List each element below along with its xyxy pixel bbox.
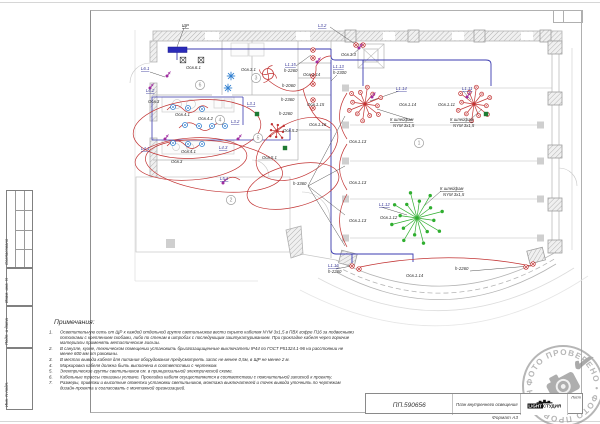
title-block: ПП.590656 План внутреннего освещения ▂▅▃… <box>365 393 583 414</box>
plan-label: L3.2 <box>318 23 327 28</box>
plan-label: ЩР <box>182 23 189 28</box>
room-number: 3 <box>255 76 258 82</box>
plan-label: L1.11 <box>462 86 473 91</box>
sheet-cell: Лист <box>568 394 584 415</box>
plan-label: L3.2 <box>231 119 240 124</box>
note-item: 1.Осветительную сеть от ЩР к каждой отде… <box>48 330 354 346</box>
plan-label: L4.1 <box>141 146 150 151</box>
room-number: 4 <box>219 118 222 124</box>
room-number: 1 <box>418 141 421 147</box>
doc-number-cell: ПП.590656 <box>366 394 453 415</box>
side-stamp-cell: Взам. инв. N <box>6 268 33 306</box>
side-stamp-cell: Согласовано <box>6 190 33 268</box>
plan-label: h-2260 <box>284 68 298 73</box>
plan-label: Осв.1.14 <box>303 72 321 77</box>
plan-label: Осв.3.1 <box>241 67 257 72</box>
note-item: 4.Маркировка кабеля должна быть выполнен… <box>48 363 354 368</box>
plan-label: Осв.1.16 <box>309 122 327 127</box>
plan-label: К шлейфам <box>440 186 463 191</box>
side-stamp-cell: Инв. N подл. <box>6 348 33 410</box>
plan-label: Осв.3 <box>148 99 160 104</box>
plan-label: h-2060 <box>282 83 296 88</box>
drawing-title-cell: План внутреннего освещения <box>453 394 521 415</box>
plan-label: L3.1 <box>247 101 256 106</box>
notes-heading: Примечания: <box>54 318 354 326</box>
plan-label: h-2260 <box>328 269 342 274</box>
plan-label: h-2300 <box>333 70 347 75</box>
distribution-board <box>168 47 187 53</box>
format-label: Формат А3 <box>400 415 600 421</box>
side-stamp-label: Подп. и дата <box>4 318 9 345</box>
logo-word2: СТУДИЯ <box>543 404 561 409</box>
plan-label: NYM 3х1,5 <box>393 123 415 128</box>
plan-label: Осв.1.13 <box>349 139 367 144</box>
plan-label: Осв.1.13 <box>349 218 367 223</box>
plan-label: Осв.3 <box>171 159 183 164</box>
note-item: 5.Электрические группы светильников см. … <box>48 369 354 374</box>
plan-label: Осв.4.2 <box>198 116 214 121</box>
note-item: 6.Кабельные трассы показаны условно. Про… <box>48 374 354 379</box>
side-stamp-label: Взам. инв. N <box>4 278 9 303</box>
plan-label: L1.13 <box>333 64 344 69</box>
plan-label: Осв.5.2 <box>283 128 299 133</box>
plan-label: L6.1 <box>141 66 150 71</box>
plan-label: Осв.5.1 <box>262 155 278 160</box>
plan-label: L6.2 <box>146 88 155 93</box>
walls-layer <box>130 30 588 326</box>
side-stamp-cell: Подп. и дата <box>6 306 33 348</box>
plan-label: NYM 3х1,5 <box>453 123 475 128</box>
plan-label: Осв.4.1 <box>181 149 197 154</box>
plan-label: L1.12 <box>379 202 390 207</box>
plan-label: NYM 3х1,5 <box>443 192 465 197</box>
plan-label: К шлейфам <box>390 117 413 122</box>
plan-label: L1.16 <box>328 263 339 268</box>
plan-label: Осв.1.12 <box>380 215 398 220</box>
plan-label: h-3360 <box>293 181 307 186</box>
plan-label: Осв.1.14 <box>399 102 417 107</box>
plan-label: Осв.1.14 <box>406 273 424 278</box>
note-item: 2.В санузле, кухне, техническом помещени… <box>48 346 354 357</box>
notes-block: Примечания: 1.Осветительную сеть от ЩР к… <box>48 318 354 391</box>
note-item: 3.В местах вывода кабеля для питания обо… <box>48 357 354 362</box>
labels-layer: 123456ЩРL3.2Осв.3.3Осв.6.1L6.1L6.2Осв.3.… <box>141 23 475 278</box>
logo-cell: ▂▅▃▇▃▅▂ LIGHTСТУДИЯ <box>521 394 568 415</box>
plan-label: L5.1 <box>220 176 229 181</box>
plan-label: Осв.3.3 <box>341 52 357 57</box>
plan-label: L1.14 <box>396 86 407 91</box>
plan-label: h-2260 <box>279 111 293 116</box>
logo-word1: LIGHT <box>527 404 543 409</box>
side-stamp-label: Согласовано <box>4 239 9 265</box>
side-stamp-label: Инв. N подл. <box>4 382 9 407</box>
plan-label: Осв.1.11 <box>438 102 456 107</box>
room-number: 6 <box>199 83 202 89</box>
plan-label: h-2360 <box>281 97 295 102</box>
plan-label: Осв.4.1 <box>175 112 191 117</box>
plan-label: Осв.1.13 <box>349 180 367 185</box>
notes-list: 1.Осветительную сеть от ЩР к каждой отде… <box>48 330 354 391</box>
room-number: 5 <box>257 136 260 142</box>
plan-label: Осв.6.1 <box>186 65 202 70</box>
plan-label: К шлейфам <box>450 117 473 122</box>
plan-label: Осв.1.15 <box>307 102 325 107</box>
plan-label: L1.15 <box>285 62 296 67</box>
drawing-sheet: { "sheet": { "format_label": "Формат А3"… <box>0 0 600 424</box>
note-item: 7.Размеры, привязки и высотные отметки у… <box>48 380 354 391</box>
plan-label: L4.3 <box>219 145 228 150</box>
plan-label: h-2260 <box>455 266 469 271</box>
room-number: 2 <box>230 198 233 204</box>
